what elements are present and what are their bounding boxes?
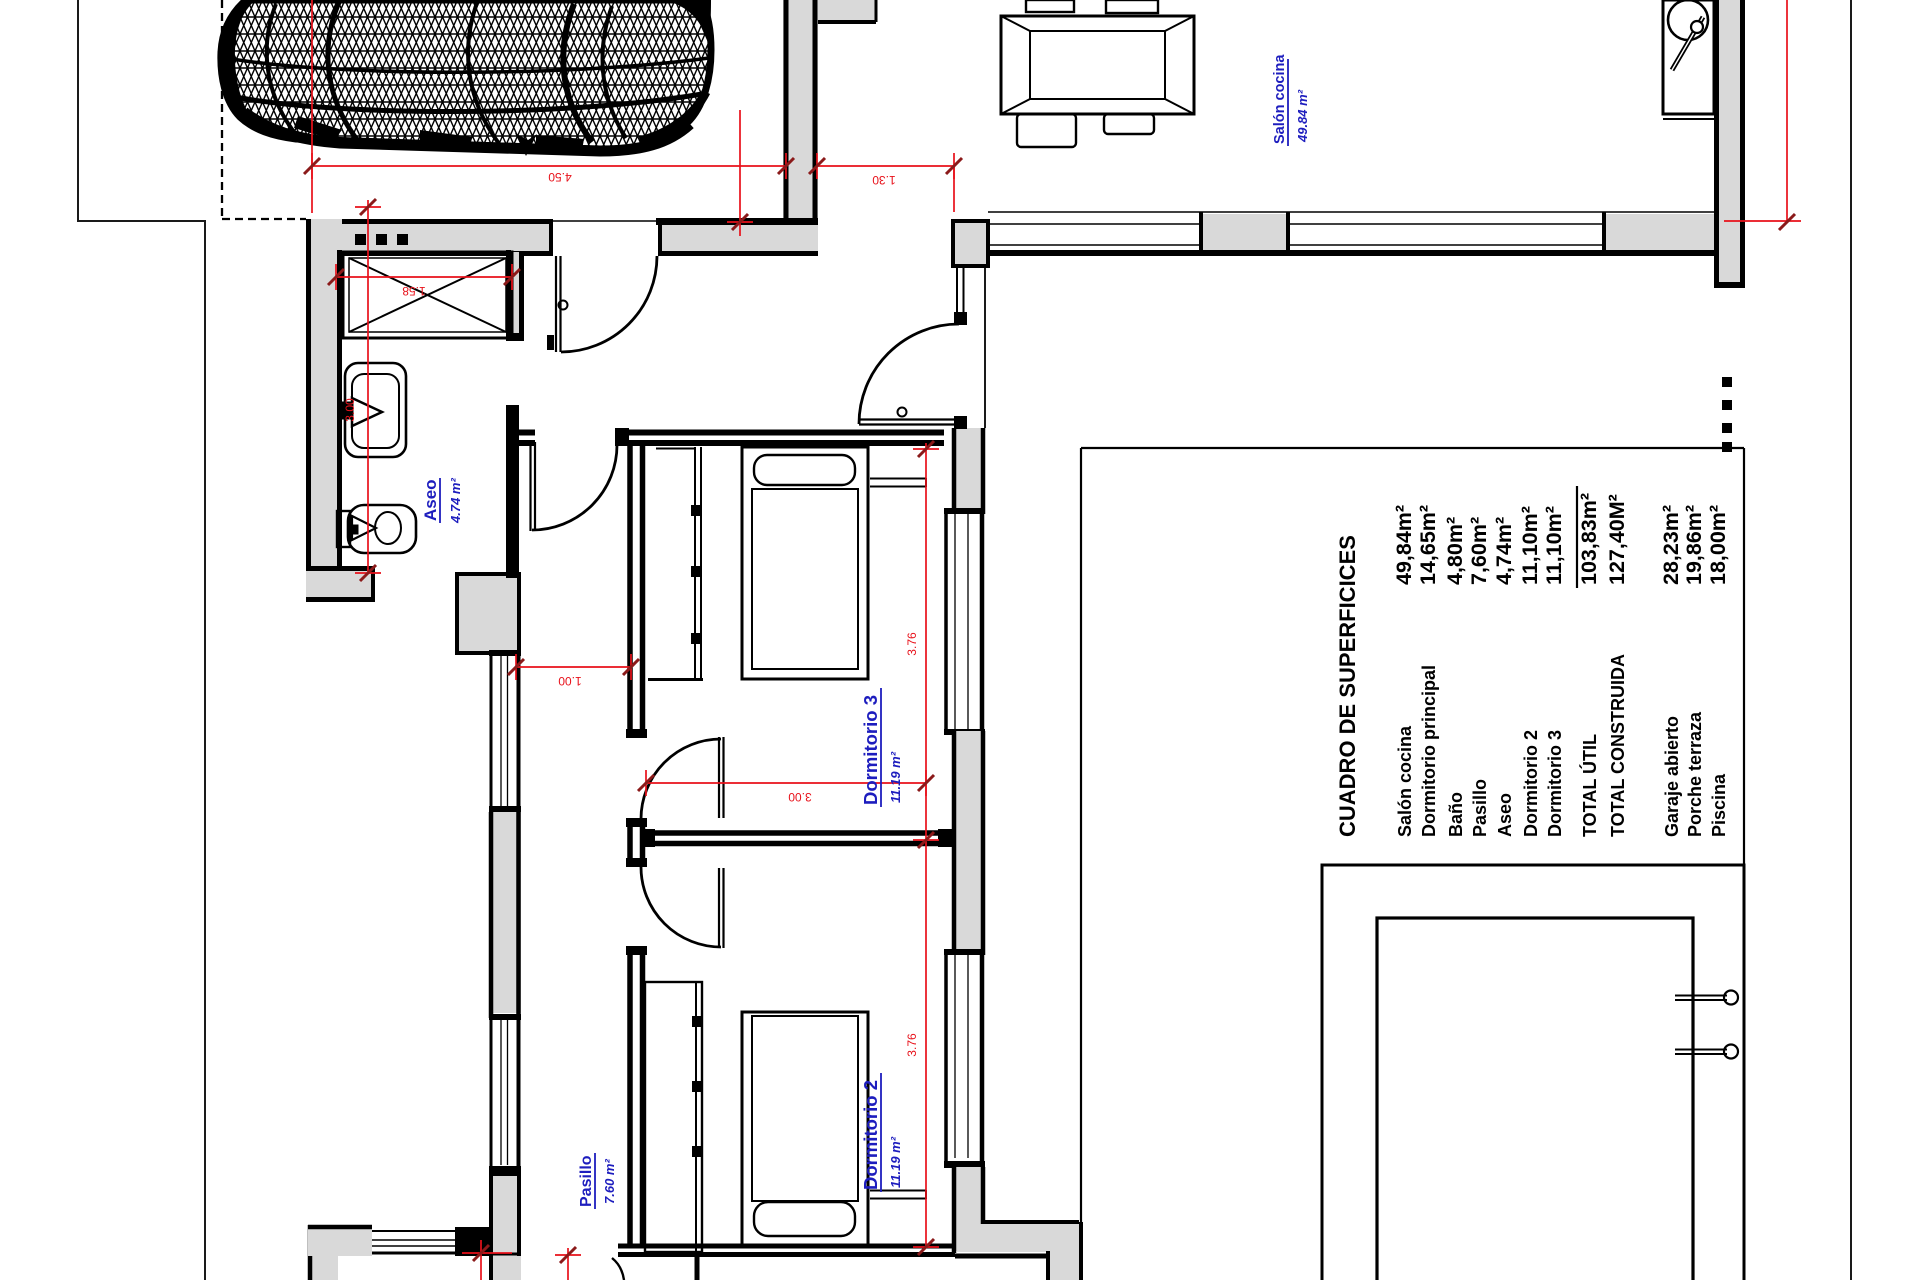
- svg-text:1.58: 1.58: [402, 284, 426, 298]
- svg-text:Dormitorio 3: Dormitorio 3: [860, 695, 881, 805]
- svg-text:4.50: 4.50: [548, 170, 572, 184]
- svg-text:Pasillo: Pasillo: [578, 1155, 595, 1207]
- svg-text:3.76: 3.76: [905, 1033, 919, 1057]
- svg-text:127,40M²: 127,40M²: [1605, 494, 1629, 585]
- svg-text:Garaje abierto: Garaje abierto: [1662, 716, 1682, 837]
- svg-text:11.19 m²: 11.19 m²: [888, 1136, 903, 1188]
- svg-text:Dormitorio 2: Dormitorio 2: [1521, 730, 1541, 837]
- svg-text:3.00: 3.00: [343, 398, 357, 422]
- svg-text:28,23m²: 28,23m²: [1659, 505, 1683, 585]
- svg-text:18,00m²: 18,00m²: [1706, 505, 1730, 585]
- svg-text:7.60 m²: 7.60 m²: [602, 1159, 617, 1204]
- svg-text:Dormitorio principal: Dormitorio principal: [1419, 665, 1439, 837]
- svg-text:11,10m²: 11,10m²: [1542, 506, 1566, 585]
- svg-text:3.76: 3.76: [905, 632, 919, 656]
- svg-text:Salón cocina: Salón cocina: [1395, 725, 1415, 837]
- svg-text:7,60m²: 7,60m²: [1467, 517, 1491, 585]
- svg-text:49,84m²: 49,84m²: [1392, 505, 1416, 585]
- svg-text:Dormitorio 3: Dormitorio 3: [1545, 730, 1565, 837]
- svg-text:1.00: 1.00: [558, 674, 582, 688]
- svg-text:4,80m²: 4,80m²: [1443, 517, 1467, 585]
- svg-text:3.00: 3.00: [788, 790, 812, 804]
- svg-text:4,74m²: 4,74m²: [1492, 517, 1516, 585]
- svg-text:1.30: 1.30: [872, 173, 896, 187]
- svg-text:19,86m²: 19,86m²: [1682, 505, 1706, 585]
- svg-text:TOTAL CONSTRUIDA: TOTAL CONSTRUIDA: [1608, 654, 1628, 837]
- svg-text:Piscina: Piscina: [1709, 773, 1729, 837]
- svg-text:14,65m²: 14,65m²: [1416, 505, 1440, 585]
- svg-text:11,10m²: 11,10m²: [1518, 506, 1542, 585]
- svg-text:49.84 m²: 49.84 m²: [1295, 89, 1310, 143]
- svg-text:11.19 m²: 11.19 m²: [888, 751, 903, 803]
- svg-text:Dormitorio 2: Dormitorio 2: [860, 1080, 881, 1190]
- svg-text:103,83m²: 103,83m²: [1577, 493, 1601, 585]
- svg-text:4.74 m²: 4.74 m²: [448, 478, 463, 524]
- svg-text:Pasillo: Pasillo: [1470, 779, 1490, 837]
- svg-text:Aseo: Aseo: [421, 479, 440, 521]
- svg-text:CUADRO DE SUPERFICICES: CUADRO DE SUPERFICICES: [1335, 535, 1360, 837]
- svg-text:Porche terraza: Porche terraza: [1685, 711, 1705, 837]
- svg-text:Salón cocina: Salón cocina: [1272, 54, 1288, 144]
- svg-text:TOTAL ÚTIL: TOTAL ÚTIL: [1579, 734, 1600, 837]
- svg-text:Aseo: Aseo: [1495, 793, 1515, 837]
- svg-text:Baño: Baño: [1446, 792, 1466, 837]
